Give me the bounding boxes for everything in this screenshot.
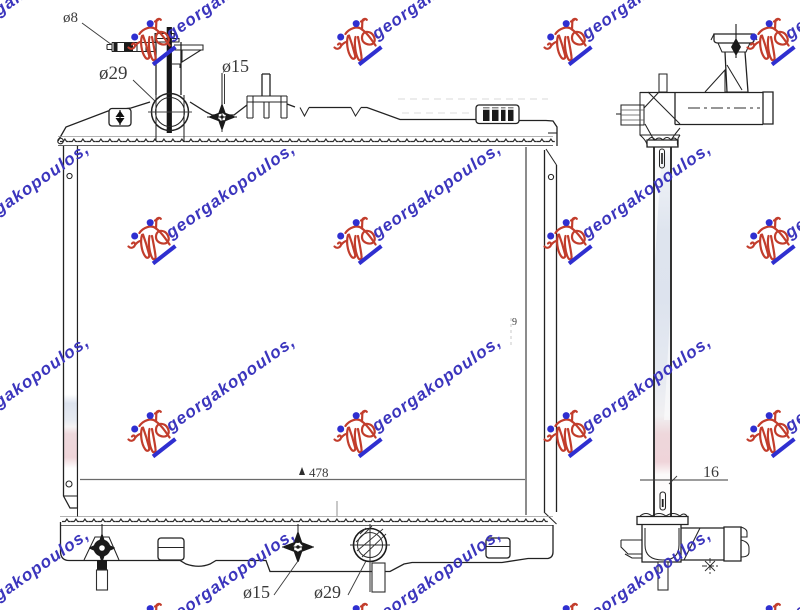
svg-text:16: 16: [703, 464, 719, 481]
svg-text:ø29: ø29: [99, 63, 128, 84]
svg-text:ø29: ø29: [314, 582, 341, 602]
svg-text:478: 478: [309, 465, 329, 480]
svg-text:9: 9: [512, 317, 517, 328]
svg-text:ø8: ø8: [63, 10, 78, 26]
svg-text:ø15: ø15: [243, 582, 270, 602]
svg-text:ø15: ø15: [222, 56, 249, 76]
